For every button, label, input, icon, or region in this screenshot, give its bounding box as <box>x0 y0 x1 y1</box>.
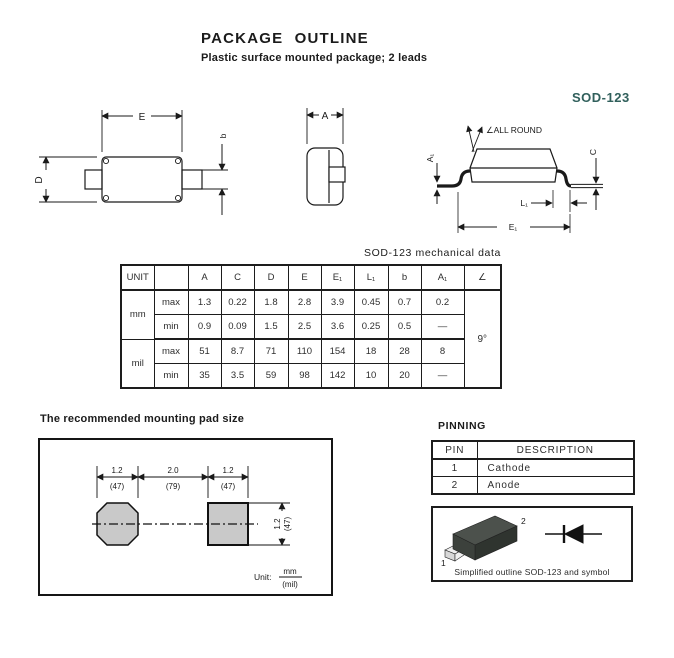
pin-table-header-row: PIN DESCRIPTION <box>432 441 634 459</box>
pin-description: Anode <box>477 477 634 495</box>
table-row: 2 Anode <box>432 477 634 495</box>
table-cell: 2.8 <box>288 290 321 315</box>
table-cell: 20 <box>388 364 421 389</box>
row-label: max <box>154 339 188 364</box>
col-header: A₁ <box>421 265 464 290</box>
table-cell: 0.9 <box>188 315 221 340</box>
pinning-table: PIN DESCRIPTION 1 Cathode 2 Anode <box>431 440 635 495</box>
simplified-outline-drawing: 2 1 <box>433 508 631 566</box>
table-cell: 10 <box>354 364 388 389</box>
dim-label-a: A <box>322 111 329 122</box>
table-cell: 0.22 <box>221 290 254 315</box>
table-row: 1 Cathode <box>432 459 634 477</box>
table-cell: 1.5 <box>254 315 288 340</box>
table-cell: 18 <box>354 339 388 364</box>
angle-value-cell: 9° <box>464 290 501 388</box>
col-header: E <box>288 265 321 290</box>
table-cell: 0.25 <box>354 315 388 340</box>
table-cell: 110 <box>288 339 321 364</box>
col-header: UNIT <box>121 265 154 290</box>
dim-label-d: D <box>34 176 45 183</box>
table-cell: 0.5 <box>388 315 421 340</box>
mounting-pad-box: 1.2 (47) 2.0 (79) 1.2 (47) 1.2 (47) Unit… <box>38 438 333 596</box>
table-cell: — <box>421 315 464 340</box>
package-outline-drawings: E D b A ∠ALL ROUND A₁ <box>25 100 665 250</box>
table-cell: 0.45 <box>354 290 388 315</box>
pad-dim-left-mil: (47) <box>110 482 125 491</box>
col-header-pin: PIN <box>432 441 477 459</box>
pin2-label: 2 <box>521 516 526 526</box>
table-cell: 2.5 <box>288 315 321 340</box>
col-header: C <box>221 265 254 290</box>
pad-dim-right-mm: 1.2 <box>222 466 234 475</box>
table-cell: 1.3 <box>188 290 221 315</box>
pin1-label: 1 <box>441 558 446 566</box>
table-cell: 1.8 <box>254 290 288 315</box>
diode-symbol-icon <box>545 525 602 543</box>
mounting-pad-drawing: 1.2 (47) 2.0 (79) 1.2 (47) 1.2 (47) Unit… <box>40 440 331 594</box>
lead-left <box>85 170 102 189</box>
pinning-heading: PINNING <box>438 420 486 432</box>
lead-right-side <box>557 171 571 186</box>
col-header-description: DESCRIPTION <box>477 441 634 459</box>
simplified-outline-caption: Simplified outline SOD-123 and symbol <box>433 567 631 577</box>
top-view-drawing: E D b <box>34 110 228 215</box>
dim-label-e1: E₁ <box>509 222 518 232</box>
table-cell: 154 <box>321 339 354 364</box>
package-3d-view <box>445 516 517 561</box>
table-row: min 35 3.5 59 98 142 10 20 — <box>121 364 501 389</box>
table-cell: 98 <box>288 364 321 389</box>
dim-label-l1: L₁ <box>520 198 528 208</box>
mechanical-data-table: UNIT A C D E E₁ L₁ b A₁ ∠ mm max 1.3 0.2… <box>120 264 502 389</box>
lead-right <box>182 170 202 189</box>
table-cell: 8 <box>421 339 464 364</box>
table-cell: 0.2 <box>421 290 464 315</box>
table-cell: 59 <box>254 364 288 389</box>
col-header: E₁ <box>321 265 354 290</box>
dim-label-e: E <box>139 112 146 123</box>
unit-denominator: (mil) <box>282 580 298 589</box>
simplified-outline-box: 2 1 Simplified outline SOD-123 and symbo… <box>431 506 633 582</box>
pad-dim-left-mm: 1.2 <box>111 466 123 475</box>
table-cell: 35 <box>188 364 221 389</box>
pin-number: 1 <box>432 459 477 477</box>
dim-label-b: b <box>218 133 228 138</box>
pad-dim-center-mil: (79) <box>166 482 181 491</box>
table-cell: 28 <box>388 339 421 364</box>
row-label: min <box>154 364 188 389</box>
page-title: PACKAGE OUTLINE <box>201 30 369 47</box>
table-cell: — <box>421 364 464 389</box>
pin-number: 2 <box>432 477 477 495</box>
package-body-top-view <box>102 157 182 202</box>
all-round-note: ∠ALL ROUND <box>486 125 542 135</box>
lead-left-side <box>437 171 470 186</box>
page-subtitle: Plastic surface mounted package; 2 leads <box>201 52 427 64</box>
col-header: ∠ <box>464 265 501 290</box>
pad-dim-right-mil: (47) <box>221 482 236 491</box>
pin-description: Cathode <box>477 459 634 477</box>
col-header <box>154 265 188 290</box>
side-view-drawing: ∠ALL ROUND A₁ C L₁ E₁ <box>425 125 603 233</box>
table-row: mm max 1.3 0.22 1.8 2.8 3.9 0.45 0.7 0.2… <box>121 290 501 315</box>
dim-label-c: C <box>588 149 598 155</box>
col-header: b <box>388 265 421 290</box>
table-cell: 0.09 <box>221 315 254 340</box>
table-row: min 0.9 0.09 1.5 2.5 3.6 0.25 0.5 — <box>121 315 501 340</box>
dim-label-a1: A₁ <box>425 154 435 163</box>
row-label: max <box>154 290 188 315</box>
unit-numerator: mm <box>283 567 297 576</box>
table-row: mil max 51 8.7 71 110 154 18 28 8 <box>121 339 501 364</box>
datasheet-page: { "page": { "title": "PACKAGE OUTLINE", … <box>0 0 674 658</box>
end-view-drawing: A <box>307 108 345 205</box>
unit-label: Unit: <box>254 572 271 582</box>
table-cell: 0.7 <box>388 290 421 315</box>
pad-dim-height-mm: 1.2 <box>273 518 282 530</box>
col-header: A <box>188 265 221 290</box>
mounting-pad-heading: The recommended mounting pad size <box>40 413 244 425</box>
table-cell: 142 <box>321 364 354 389</box>
table-cell: 3.5 <box>221 364 254 389</box>
table-header-row: UNIT A C D E E₁ L₁ b A₁ ∠ <box>121 265 501 290</box>
table-cell: 71 <box>254 339 288 364</box>
unit-mil-cell: mil <box>121 339 154 388</box>
table-cell: 8.7 <box>221 339 254 364</box>
table-cell: 3.6 <box>321 315 354 340</box>
col-header: D <box>254 265 288 290</box>
row-label: min <box>154 315 188 340</box>
unit-mm-cell: mm <box>121 290 154 339</box>
pad-dim-height-mil: (47) <box>283 517 292 532</box>
package-body-side-view <box>470 149 557 182</box>
table-cell: 51 <box>188 339 221 364</box>
pad-dim-center-mm: 2.0 <box>167 466 179 475</box>
table-cell: 3.9 <box>321 290 354 315</box>
col-header: L₁ <box>354 265 388 290</box>
mech-table-caption: SOD-123 mechanical data <box>364 247 501 259</box>
